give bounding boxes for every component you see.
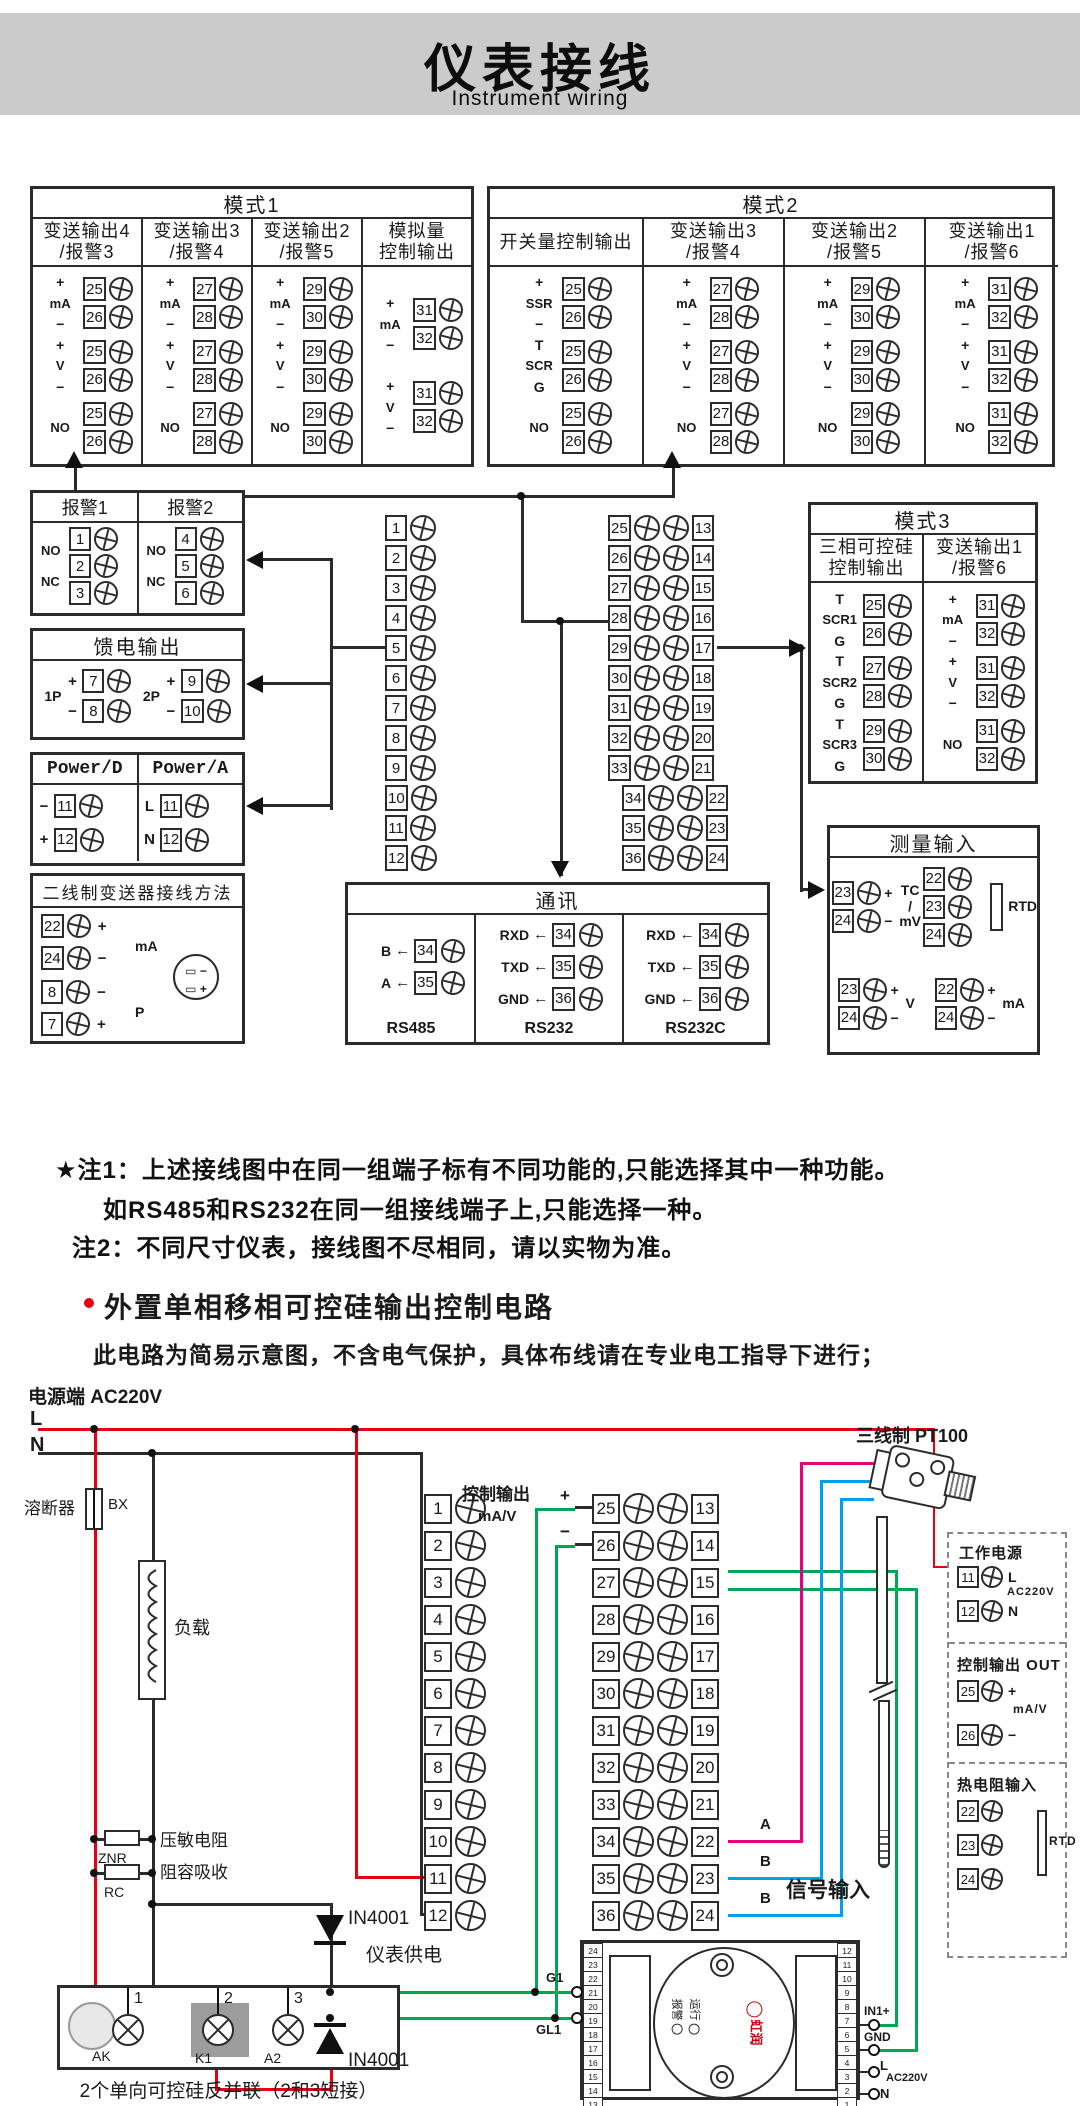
wire [420, 1452, 423, 1915]
bottom-terminal-strip-1-12: 123456789101112 [424, 1490, 486, 1934]
wire-a-label: A [760, 1816, 771, 1833]
signal-label: SSR [526, 297, 553, 310]
screw-terminal-icon [634, 545, 660, 571]
terminal-number: 32 [976, 622, 999, 646]
polarity-sign: + [890, 982, 900, 998]
wire [575, 1543, 592, 1546]
measure-row: 24 [923, 923, 986, 947]
terminal: 32 [988, 430, 1038, 454]
screw-terminal-icon [634, 605, 660, 631]
dual-terminal-row: 3523 [622, 813, 728, 843]
terminal: 31 [988, 340, 1038, 364]
dual-terminal-row: 2816 [592, 1601, 719, 1638]
terminal-row: 10 [385, 783, 437, 813]
wire [800, 1462, 803, 1843]
tx-minus: ▭ − [175, 962, 217, 980]
terminal-number: 29 [608, 635, 631, 661]
measure-label: mA [1002, 996, 1025, 1011]
terminal-pair: 3132 [976, 719, 1026, 771]
comm-signal-label: A [357, 975, 391, 991]
column-header-line: /报警6 [964, 242, 1019, 263]
signal-group: NO2930 [253, 400, 361, 456]
terminal: 32 [976, 622, 1026, 646]
signal-group: +mA−2728 [143, 275, 251, 331]
screw-terminal-icon [207, 699, 231, 723]
terminal-number: 29 [303, 402, 326, 426]
module-terminal: 22 [583, 1971, 603, 1986]
signal-bottom-sign: − [56, 380, 64, 394]
terminal-number: 17 [692, 635, 715, 661]
terminal: 28 [863, 684, 913, 708]
screw-terminal-icon [329, 402, 353, 426]
signal-symbol: NO [520, 400, 558, 456]
comm-title: 通讯 [348, 885, 767, 915]
column-header: 变送输出3/报警4 [644, 219, 783, 267]
screw-terminal-icon [657, 1900, 688, 1931]
signal-bottom-sign: − [824, 380, 832, 394]
dual-terminal-row: 2816 [608, 603, 728, 633]
terminal-number: 26 [562, 430, 585, 454]
terminal-number: 22 [691, 1827, 719, 1857]
signal-top-sign: + [961, 275, 969, 289]
terminal: 25 [562, 277, 612, 301]
screw-terminal-icon [735, 340, 759, 364]
column-header-line: /报警6 [952, 558, 1007, 579]
terminal-number: 15 [691, 1568, 719, 1598]
column-header-line: 控制输出 [829, 558, 905, 579]
screw-terminal-icon [948, 867, 972, 891]
signal-label: NO [50, 421, 70, 434]
fuse-code: BX [108, 1496, 128, 1513]
signal-symbol: +mA− [261, 275, 299, 331]
screw-terminal-icon [109, 402, 133, 426]
rc-snubber-symbol [104, 1864, 140, 1880]
note-1: ★注1：上述接线图中在同一组端子标有不同功能的,只能选择其中一种功能。 [55, 1150, 900, 1185]
signal-top-sign: + [949, 654, 957, 668]
panel-plus: + [1008, 1683, 1016, 1699]
signal-top-sign: + [949, 592, 957, 606]
screw-terminal-icon [94, 527, 118, 551]
column-header-line: 变送输出2 [811, 221, 898, 242]
screw-terminal-icon [94, 554, 118, 578]
wire [820, 1480, 823, 1880]
comm-signal-label: TXD [642, 959, 676, 975]
terminal-number: 3 [69, 581, 91, 605]
module-terminal: 19 [583, 2013, 603, 2028]
terminal-number: 18 [691, 1679, 719, 1709]
scr-terminal-3: 3 [294, 1990, 303, 2008]
terminal-number: 14 [692, 545, 715, 571]
terminal-number: 13 [692, 515, 715, 541]
comm-section-rs485: B←34A←35RS485 [348, 915, 476, 1042]
power-row: +12 [37, 828, 137, 852]
terminal-number: 6 [175, 581, 197, 605]
screw-terminal-icon [588, 340, 612, 364]
screw-terminal-icon [329, 340, 353, 364]
terminal-number: 24 [706, 845, 729, 871]
screw-terminal-icon [455, 1530, 486, 1561]
signal-top-sign: + [276, 275, 284, 289]
polarity-sign: + [65, 673, 79, 690]
comm-row: GND←36 [495, 987, 603, 1011]
screw-terminal-icon [657, 1604, 688, 1635]
diode-down-icon [316, 1915, 344, 1941]
power-body: L11N12 [139, 785, 243, 861]
arrowhead-icon [551, 861, 569, 878]
screw-terminal-icon [876, 340, 900, 364]
polarity-sign: L [143, 798, 157, 815]
screw-terminal-icon [657, 1530, 688, 1561]
nc-contact-label: NC [41, 574, 60, 589]
terminal-number: 16 [691, 1605, 719, 1635]
instrument-wiring-page: 仪表接线 Instrument wiring 模式1变送输出4/报警3+mA−2… [0, 0, 1080, 2106]
signal-symbol: NO [946, 400, 984, 456]
module-ac-label: AC220V [886, 2072, 928, 2084]
signal-label: SCR3 [822, 738, 857, 751]
terminal-number: 4 [385, 605, 407, 631]
junction-dot [90, 1425, 98, 1433]
signal-bottom-sign: − [961, 380, 969, 394]
mode-column: 变送输出1/报警6+mA−3132+V−3132NO3132 [924, 535, 1035, 781]
terminal-number: 26 [562, 368, 585, 392]
screw-terminal-icon [219, 368, 243, 392]
transmitter-icon: ▭ −▭ + [173, 954, 219, 1000]
terminal-number: 36 [552, 987, 575, 1011]
mode-title: 模式1 [33, 189, 471, 219]
run-indicator-icon [689, 2024, 700, 2035]
column-header-line: 变送输出1 [948, 221, 1035, 242]
screw-terminal-icon [109, 305, 133, 329]
terminal-pair: 2728 [710, 277, 760, 329]
terminal-pair: 2728 [710, 340, 760, 392]
comm-row: GND←36 [642, 987, 750, 1011]
alarm-headers: 报警1报警2 [33, 493, 242, 523]
terminal-pair: 2526 [562, 340, 612, 392]
screw-terminal-icon [1014, 340, 1038, 364]
two-wire-row: 8− [41, 980, 106, 1004]
column-header: 变送输出3/报警4 [143, 219, 251, 267]
terminal: 29 [851, 340, 901, 364]
control-output-minus: − [560, 1522, 570, 1542]
screw-terminal-icon [79, 794, 103, 818]
screw-terminal-icon [410, 575, 436, 601]
screw-terminal-icon [623, 1493, 654, 1524]
left-arrow-icon: ← [395, 942, 410, 959]
terminal-row: 12 [424, 1897, 486, 1934]
screw-terminal-icon [1001, 684, 1025, 708]
control-output-mav: mA/V [478, 1508, 516, 1525]
wire [728, 1914, 843, 1917]
nc-contact-label: NC [147, 574, 166, 589]
terminal-row: 8 [385, 723, 437, 753]
signal-group: TSCR1G2526 [811, 592, 922, 648]
polarity-sign: − [97, 984, 106, 1001]
wire-b1-label: B [760, 1853, 771, 1870]
terminal-number: 7 [41, 1012, 63, 1036]
contact-tags: NONC [143, 527, 175, 611]
signal-symbol: NO [809, 400, 847, 456]
column-body: TSCR1G2526TSCR2G2728TSCR3G2930 [811, 583, 922, 781]
terminal: 29 [303, 402, 353, 426]
panel-rtd: RTD [1049, 1834, 1077, 1848]
terminal: 25 [83, 277, 133, 301]
diode1-label: IN4001 [348, 1908, 409, 1930]
left-arrow-icon: ← [680, 926, 695, 943]
terminal-number: 9 [424, 1790, 452, 1820]
terminal-number: 23 [706, 815, 729, 841]
terminal: 27 [193, 340, 243, 364]
screw-terminal-icon [67, 946, 91, 970]
terminal-pair: 3132 [976, 594, 1026, 646]
panel-minus: − [1008, 1727, 1016, 1743]
screw-terminal-icon [219, 402, 243, 426]
screw-terminal-icon [863, 1006, 887, 1030]
measure-label-line: mA [1002, 996, 1025, 1011]
screw-terminal-icon [1001, 594, 1025, 618]
screw-terminal-icon [185, 794, 209, 818]
signal-group: +V−3132 [926, 338, 1058, 394]
panel-row-26: 26 − [957, 1724, 1016, 1746]
screw-terminal-icon [735, 305, 759, 329]
terminal: 30 [851, 430, 901, 454]
signal-label: NO [160, 421, 180, 434]
junction-dot [90, 1835, 98, 1843]
left-arrow-icon: ← [680, 990, 695, 1007]
measure-group: 23+24−V [830, 955, 923, 1052]
screw-terminal-icon [455, 1641, 486, 1672]
run-alarm-indicators: 运行 报警 [667, 1999, 702, 2035]
polarity-sign: + [164, 673, 178, 690]
signal-label: mA [270, 297, 291, 310]
module-terminal: 20 [583, 1999, 603, 2014]
wire [330, 558, 333, 810]
dual-terminal-row: 3018 [592, 1675, 719, 1712]
mains-label: 电源端 AC220V [28, 1382, 162, 1409]
signal-top-sign: + [683, 275, 691, 289]
signal-label: V [682, 359, 691, 372]
column-header-line: 变送输出4 [43, 221, 130, 242]
column-body: +mA−2930+V−2930NO2930 [253, 267, 361, 464]
center-terminal-strip-1-12: 123456789101112 [385, 513, 437, 873]
terminal-pair: 2930 [863, 719, 913, 771]
signal-symbol: +V− [371, 379, 409, 435]
screw-terminal-icon [588, 402, 612, 426]
alarm-box: 报警1报警2NONC123NONC456 [30, 490, 245, 616]
terminal: 29 [303, 277, 353, 301]
signal-bottom-sign: G [834, 759, 845, 773]
terminal-number: 25 [863, 594, 886, 618]
screw-terminal-icon [634, 665, 660, 691]
comm-row: TXD←35 [495, 955, 603, 979]
screw-terminal-icon [981, 1680, 1003, 1702]
dual-terminal-row: 2513 [592, 1490, 719, 1527]
comm-caption: RS232C [624, 1020, 767, 1038]
screw-terminal-icon [410, 695, 436, 721]
varistor-label: 压敏电阻 [160, 1826, 228, 1851]
terminal-number: 25 [83, 340, 106, 364]
terminal: 28 [710, 430, 760, 454]
mode1-box: 模式1变送输出4/报警3+mA−2526+V−2526NO2526变送输出3/报… [30, 186, 474, 467]
terminal-number: 25 [562, 402, 585, 426]
screw-cross-icon [272, 2014, 304, 2046]
terminal-number: 29 [851, 340, 874, 364]
terminal: 28 [193, 368, 243, 392]
wire-b2-label: B [760, 1890, 771, 1907]
signal-label: mA [942, 613, 963, 626]
sensor-head-icon [867, 1435, 987, 1519]
module-left-terminals: 242322212019181716151413 [583, 1944, 603, 2106]
screw-terminal-icon [94, 581, 118, 605]
screw-terminal-icon [588, 430, 612, 454]
wire [38, 1428, 935, 1431]
screw-terminal-icon [663, 605, 689, 631]
mode3-box: 模式3三相可控硅控制输出TSCR1G2526TSCR2G2728TSCR3G29… [808, 502, 1038, 784]
terminal: 29 [303, 340, 353, 364]
terminal-number: 28 [710, 305, 733, 329]
screw-terminal-icon [623, 1752, 654, 1783]
column-header-line: /报警4 [686, 242, 741, 263]
communication-box: 通讯B←34A←35RS485RXD←34TXD←35GND←36RS232RX… [345, 882, 770, 1045]
wire [521, 495, 524, 623]
terminal-pair: 3132 [413, 381, 463, 433]
mode-column: 开关量控制输出+SSR−2526TSCRG2526NO2526 [490, 219, 644, 464]
terminal-row: 6 [424, 1675, 486, 1712]
two-wire-body: 22+24−8−7+mAP▭ −▭ + [33, 908, 242, 1041]
dual-terminal-row: 3220 [592, 1749, 719, 1786]
terminal-row: 1 [385, 513, 437, 543]
terminal-pair: 2526 [83, 340, 133, 392]
signal-label: V [276, 359, 285, 372]
terminal-number: 8 [82, 699, 104, 723]
screw-terminal-icon [109, 430, 133, 454]
signal-symbol: TSCR1G [821, 592, 859, 648]
terminal-number: 35 [699, 955, 722, 979]
terminal-number: 23 [923, 895, 946, 919]
screw-terminal-icon [981, 1800, 1003, 1822]
wire [555, 1545, 558, 2020]
terminal-number: 29 [303, 277, 326, 301]
screw-terminal-icon [107, 699, 131, 723]
signal-symbol: +V− [151, 338, 189, 394]
note-1b: 如RS485和RS232在同一组接线端子上,只能选择一种。 [103, 1190, 717, 1225]
terminal-pair: 3132 [988, 277, 1038, 329]
signal-group: +mA−2526 [33, 275, 141, 331]
column-body: +mA−2728+V−2728NO2728 [644, 267, 783, 464]
wire [728, 1570, 898, 1573]
screw-terminal-icon [981, 1868, 1003, 1890]
terminal-number: 34 [622, 785, 645, 811]
terminal-number: 36 [699, 987, 722, 1011]
module-terminal: 23 [583, 1957, 603, 1972]
terminal-number: 20 [691, 1753, 719, 1783]
terminal-number: 28 [193, 368, 216, 392]
screw-terminal-icon [200, 527, 224, 551]
signal-symbol: +mA− [41, 275, 79, 331]
diode-bar [314, 1941, 346, 1945]
polarity-sign: + [98, 918, 107, 935]
screw-cross-icon [202, 2014, 234, 2046]
screw-terminal-icon [1014, 430, 1038, 454]
terminal-pair: 3132 [413, 298, 463, 350]
signal-label: NO [270, 421, 290, 434]
terminal-number: 31 [988, 340, 1011, 364]
signal-top-sign: T [835, 654, 844, 668]
signal-bottom-sign: − [683, 317, 691, 331]
fuse-label: 溶断器 [24, 1494, 75, 1519]
terminal-number: 31 [592, 1716, 620, 1746]
alarm-indicator-icon [671, 2024, 682, 2035]
screw-terminal-icon [219, 340, 243, 364]
signal-symbol: +V− [41, 338, 79, 394]
junction-dot [148, 1900, 156, 1908]
panel-row-12: 12 N [957, 1600, 1018, 1622]
signal-label: V [56, 359, 65, 372]
signal-bottom-sign: G [534, 380, 545, 394]
signal-top-sign: + [683, 338, 691, 352]
varistor-code: ZNR [98, 1850, 127, 1866]
signal-bottom-sign: − [386, 338, 394, 352]
signal-symbol: NO [668, 400, 706, 456]
signal-top-sign: + [535, 275, 543, 289]
terminal-number: 27 [863, 656, 886, 680]
module-l-label: L [880, 2058, 888, 2073]
rod-break-mark [869, 1681, 894, 1693]
signal-top-sign: + [166, 338, 174, 352]
scr-k1: K1 [195, 2050, 212, 2066]
feed-group: 2P+9−10 [143, 669, 231, 723]
screw-terminal-icon [888, 684, 912, 708]
polarity-sign: − [884, 913, 894, 929]
signal-group: NO2728 [644, 400, 783, 456]
line-l-label: L [30, 1408, 42, 1431]
terminal-number: 7 [82, 669, 104, 693]
terminal-row: 9 [424, 1786, 486, 1823]
terminal-row: 9 [385, 753, 437, 783]
screw-terminal-icon [623, 1530, 654, 1561]
wire [535, 1508, 538, 1994]
dual-terminal-row: 2715 [592, 1564, 719, 1601]
terminal-pair: 3132 [976, 656, 1026, 708]
terminal-tick [127, 1988, 129, 2014]
feed-row: +9 [164, 669, 231, 693]
screw-terminal-icon [648, 785, 674, 811]
wire [672, 467, 675, 498]
terminal-number: 35 [592, 1864, 620, 1894]
screw-terminal-icon [579, 923, 603, 947]
column-header-line: 模拟量 [389, 221, 446, 242]
terminal: 30 [303, 368, 353, 392]
comm-sections: B←34A←35RS485RXD←34TXD←35GND←36RS232RXD←… [348, 915, 767, 1042]
signal-bottom-sign: − [386, 421, 394, 435]
screw-terminal-icon [455, 1863, 486, 1894]
terminal-number: 13 [691, 1494, 719, 1524]
terminal-number: 25 [957, 1680, 979, 1702]
terminal-number: 17 [691, 1642, 719, 1672]
varistor-symbol [104, 1830, 140, 1846]
terminal-pair: 2728 [710, 402, 760, 454]
panel-divider [949, 1642, 1065, 1644]
terminal-number: 21 [691, 1790, 719, 1820]
signal-label: mA [817, 297, 838, 310]
panel-row-22: 22 [957, 1800, 1003, 1822]
dual-terminal-row: 3220 [608, 723, 728, 753]
dual-terminal-row: 3422 [592, 1823, 719, 1860]
signal-group: +mA−3132 [924, 592, 1035, 648]
screw-terminal-icon [439, 409, 463, 433]
screw-terminal-icon [588, 277, 612, 301]
screw-terminal-icon [410, 605, 436, 631]
screw-terminal-icon [219, 430, 243, 454]
